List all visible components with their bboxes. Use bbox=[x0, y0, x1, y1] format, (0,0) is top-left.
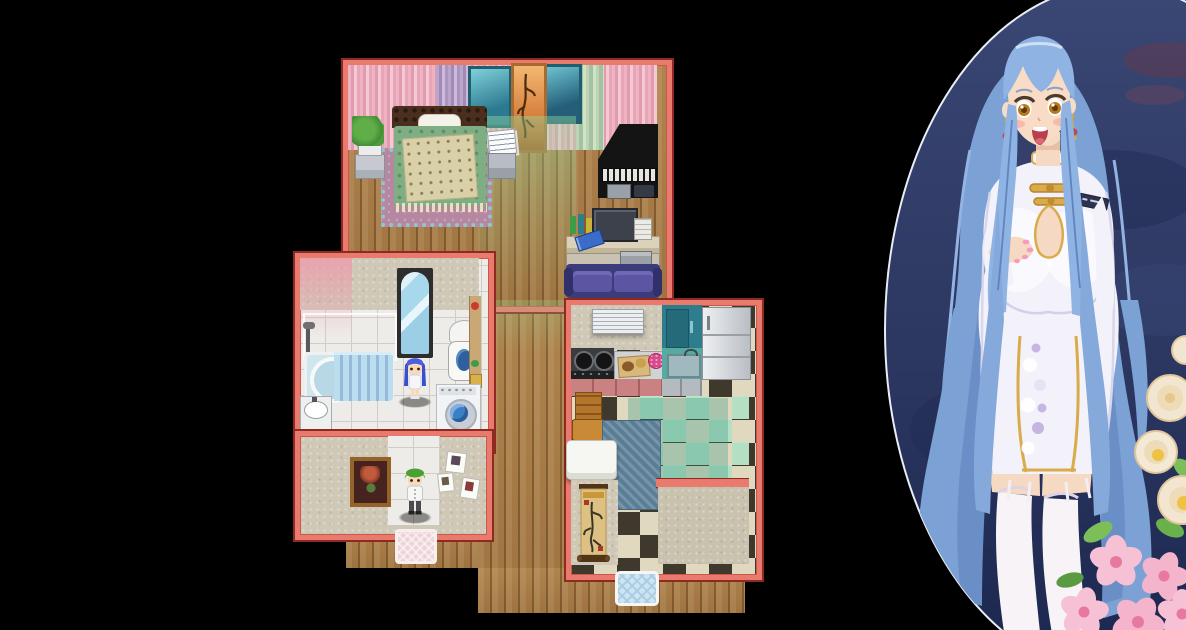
shower-head-icon bbox=[306, 326, 310, 352]
tall-teal-cabinet bbox=[662, 305, 702, 350]
nightstand bbox=[488, 153, 516, 179]
keyhole-cutout bbox=[1035, 206, 1063, 258]
framed-painting bbox=[350, 457, 391, 507]
wall-photo bbox=[445, 451, 467, 474]
tatami-corner bbox=[658, 487, 749, 564]
green-haired-boy-sprite[interactable] bbox=[401, 466, 429, 518]
blue-doormat bbox=[615, 571, 659, 606]
bamboo-hanging-scroll bbox=[577, 484, 610, 566]
blue-haired-girl-sprite[interactable] bbox=[399, 356, 431, 406]
shower-head-icon bbox=[303, 322, 315, 329]
wooden-chair bbox=[572, 392, 603, 441]
gas-stove bbox=[571, 348, 614, 379]
bottle-green bbox=[570, 216, 576, 234]
cutting-board bbox=[617, 355, 650, 378]
piano-pedal-box bbox=[607, 184, 631, 199]
kitchen-counter bbox=[614, 351, 664, 381]
piano-bench bbox=[634, 185, 654, 197]
kitchen-partition-wall bbox=[656, 479, 749, 487]
bonsai-stand bbox=[355, 154, 385, 179]
upright-piano bbox=[598, 124, 658, 198]
sink-cabinet-front bbox=[662, 379, 702, 396]
air-conditioner-vent bbox=[592, 309, 644, 334]
bottle-teal bbox=[578, 214, 584, 234]
window-icon bbox=[541, 64, 582, 124]
piano-keys bbox=[602, 168, 657, 182]
bathroom-side-shelf bbox=[469, 296, 481, 394]
full-length-mirror bbox=[397, 268, 433, 358]
shower-curtain bbox=[334, 352, 393, 401]
wall-photo bbox=[437, 472, 455, 493]
pc-tower bbox=[634, 218, 652, 240]
couch bbox=[566, 264, 660, 298]
pink-door-rug bbox=[395, 529, 437, 564]
character-portrait bbox=[870, 0, 1186, 630]
game-screen[interactable] bbox=[0, 0, 1186, 630]
bonsai-plant bbox=[352, 116, 384, 146]
wall-photo bbox=[459, 477, 480, 501]
bed-fringe bbox=[396, 203, 487, 212]
white-table bbox=[566, 440, 617, 480]
kitchen-sink bbox=[662, 348, 702, 379]
bed-quilt bbox=[402, 134, 478, 203]
refrigerator bbox=[702, 307, 751, 380]
